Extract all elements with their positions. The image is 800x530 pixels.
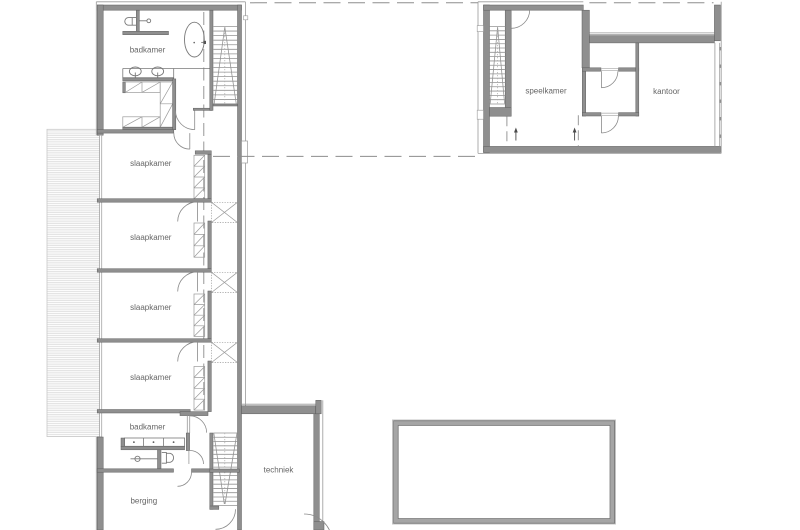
svg-text:kantoor: kantoor xyxy=(653,87,680,96)
svg-text:badkamer: badkamer xyxy=(130,46,166,55)
svg-text:slaapkamer: slaapkamer xyxy=(130,159,172,168)
svg-text:slaapkamer: slaapkamer xyxy=(130,373,172,382)
svg-text:badkamer: badkamer xyxy=(130,422,166,431)
svg-text:berging: berging xyxy=(130,497,157,506)
svg-text:slaapkamer: slaapkamer xyxy=(130,233,172,242)
svg-text:slaapkamer: slaapkamer xyxy=(130,303,172,312)
svg-text:techniek: techniek xyxy=(264,466,295,475)
svg-text:speelkamer: speelkamer xyxy=(525,86,567,95)
